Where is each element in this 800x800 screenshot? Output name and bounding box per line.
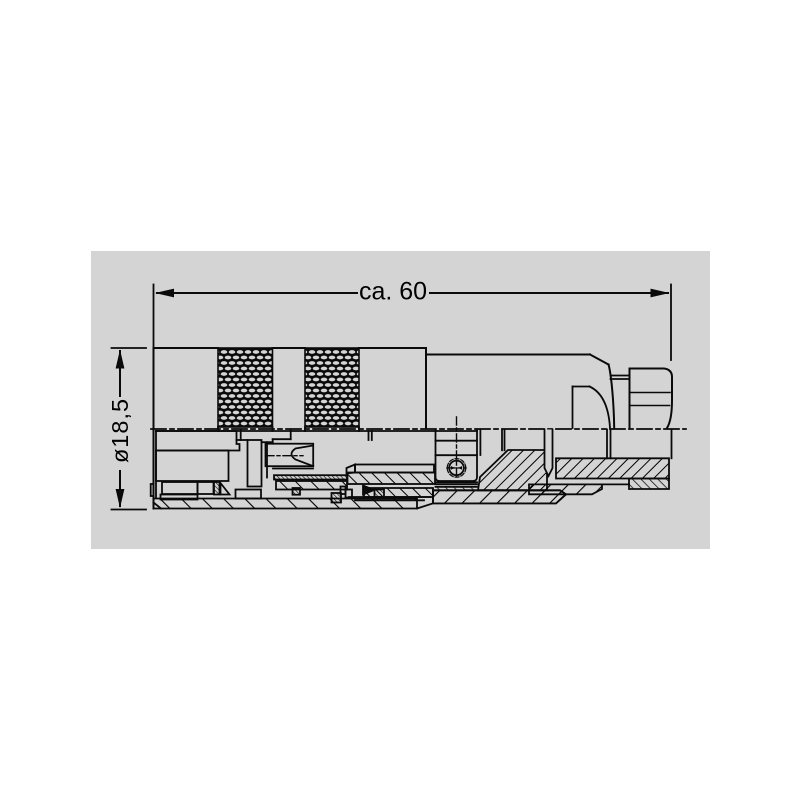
svg-text:ø18,5: ø18,5 xyxy=(107,398,133,463)
svg-text:ca. 60: ca. 60 xyxy=(359,278,427,306)
